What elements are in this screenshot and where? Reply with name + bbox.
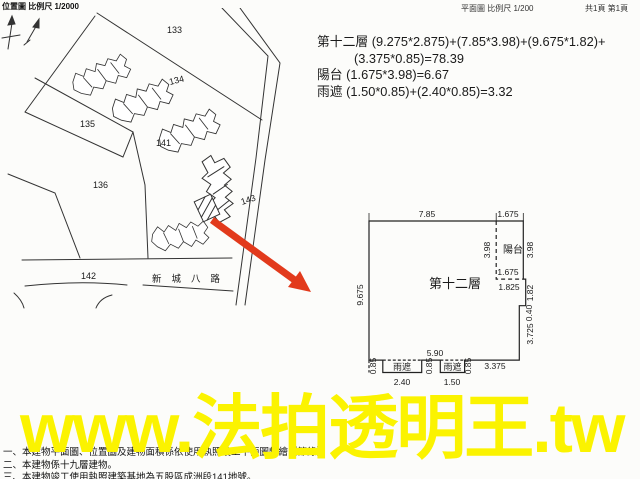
- dim-bottom-right: 3.375: [484, 361, 506, 371]
- calc-line-balcony: 陽台 (1.675*3.98)=6.67: [317, 67, 640, 84]
- parcel-label-134: 134: [168, 74, 185, 87]
- dim-below-balcony: 1.825: [498, 282, 520, 292]
- room-labels: 第十二層 陽台 雨遮 雨遮: [393, 243, 523, 372]
- parcel-label-143: 143: [240, 193, 257, 207]
- parcel-boundary-lines: [8, 13, 262, 258]
- dim-bottom-span: 5.90: [427, 348, 444, 358]
- parcel-label-133: 133: [167, 25, 182, 35]
- floor-plan-outline: [369, 221, 526, 373]
- dim-balcony-depth-right: 3.98: [525, 241, 535, 258]
- scanned-document-page: 位置圖 比例尺 1/2000 平面圖 比例尺 1/200 共1頁 第1頁 第十二…: [0, 0, 640, 479]
- page-count-label: 共1頁 第1頁: [585, 3, 628, 14]
- calc-line-eaves: 雨遮 (1.50*0.85)+(2.40*0.85)=3.32: [317, 84, 640, 101]
- dim-top-main: 7.85: [419, 209, 436, 219]
- dim-eave-h-right: 0.85: [463, 357, 473, 374]
- dim-eave-h-left: 0.85: [368, 357, 378, 374]
- dim-top-balcony: 1.675: [497, 209, 519, 219]
- dim-balcony-bottom: 1.675: [497, 267, 519, 277]
- parcel-label-136: 136: [93, 180, 108, 190]
- dim-right-upper: 1.82: [525, 284, 535, 301]
- dim-eave1-width: 2.40: [394, 377, 411, 387]
- unit-floor-plan: 7.85 1.675 9.675 3.98 3.98 1.675 1.825 1…: [355, 205, 640, 397]
- site-location-map: 133 134 135 136 141 142 143 新城八路: [0, 8, 320, 313]
- watermark-text: www.法拍透明王.tw: [20, 391, 623, 465]
- area-calculation-block: 第十二層 (9.275*2.875)+(7.85*3.98)+(9.675*1.…: [317, 34, 640, 100]
- dim-right-step: 0.40: [524, 304, 534, 321]
- dim-eave-h-mid: 0.85: [424, 357, 434, 374]
- parcel-label-142: 142: [81, 271, 96, 281]
- floor-plan-scale-label: 平面圖 比例尺 1/200: [461, 3, 533, 14]
- north-arrow-icon: [2, 16, 39, 49]
- balcony-label: 陽台: [503, 243, 523, 256]
- dim-eave2-width: 1.50: [444, 377, 461, 387]
- parcel-label-135: 135: [80, 119, 95, 129]
- room-label-floor12: 第十二層: [429, 276, 481, 291]
- eave1-label: 雨遮: [393, 361, 411, 372]
- road-name-label: 新城八路: [152, 273, 230, 285]
- parcel-label-141: 141: [156, 138, 171, 148]
- calc-line-floor12: 第十二層 (9.275*2.875)+(7.85*3.98)+(9.675*1.…: [317, 34, 640, 51]
- dim-balcony-depth-left: 3.98: [482, 241, 492, 258]
- calc-line-floor12-cont: (3.375*0.85)=78.39: [317, 51, 640, 68]
- dim-left-side: 9.675: [355, 284, 365, 306]
- footnote-3: 三、本建物竣工使用執照建築基地為五股區成洲段141地號。: [3, 472, 331, 479]
- eave2-label: 雨遮: [443, 361, 461, 372]
- dim-right-lower: 3.725: [525, 323, 535, 345]
